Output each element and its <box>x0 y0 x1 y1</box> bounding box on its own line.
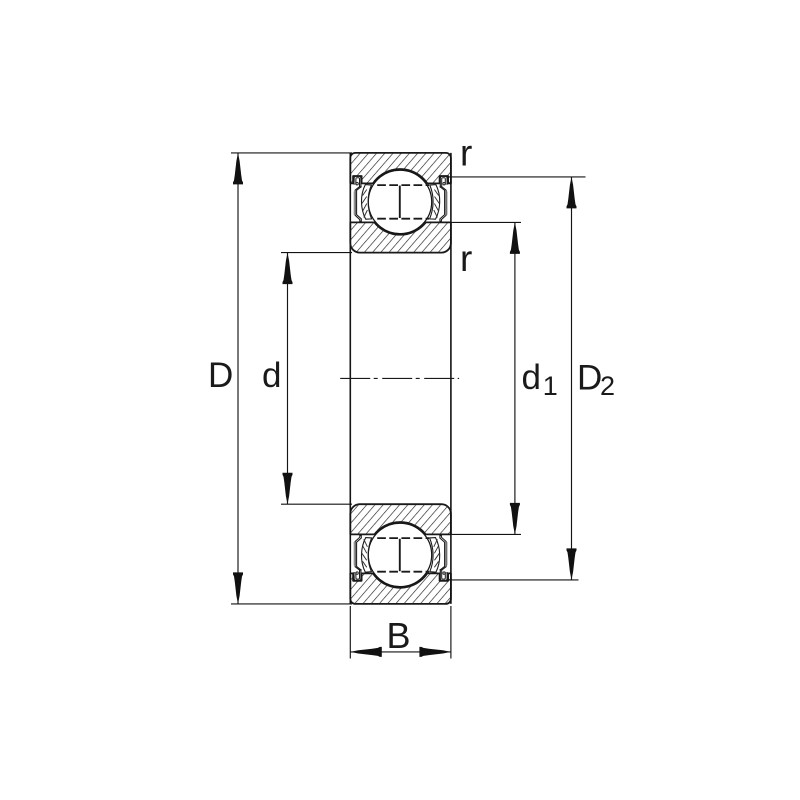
svg-text:r: r <box>460 132 472 173</box>
svg-text:1: 1 <box>543 371 558 401</box>
svg-text:2: 2 <box>600 371 615 401</box>
svg-text:D: D <box>577 359 602 398</box>
svg-text:d: d <box>522 358 541 397</box>
svg-text:D: D <box>208 356 233 395</box>
svg-text:d: d <box>262 356 281 395</box>
svg-text:B: B <box>387 615 411 656</box>
svg-text:r: r <box>460 238 472 279</box>
